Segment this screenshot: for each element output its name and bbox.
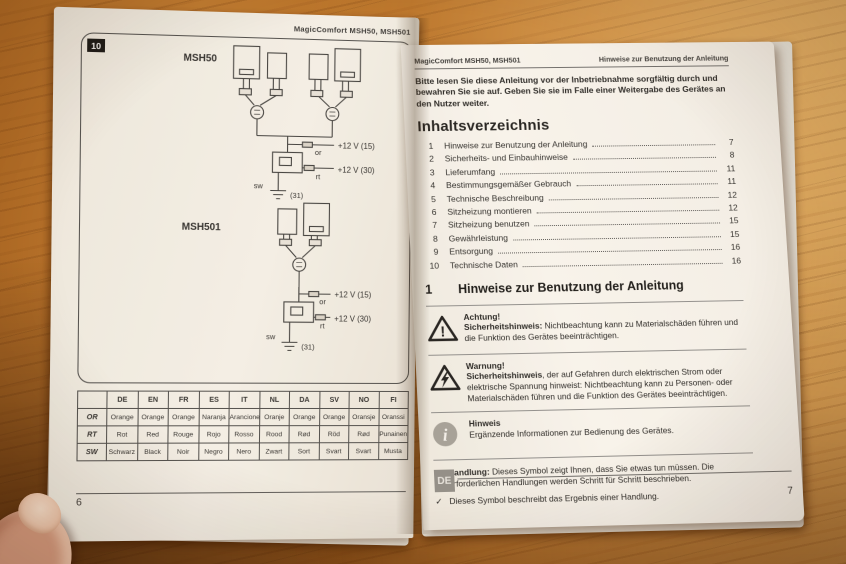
- relay: [272, 152, 302, 173]
- color-table-header-cell: IT: [229, 391, 259, 408]
- toc-item-label: Gewährleistung: [448, 232, 511, 243]
- toc-dot-leader: [592, 144, 715, 147]
- color-table-cell: Rød: [349, 426, 379, 443]
- wire-label-or: or: [319, 297, 326, 306]
- color-table-header-cell: SV: [319, 391, 349, 408]
- warning-triangle-lightning-icon: [429, 361, 468, 406]
- toc-item-page: 11: [718, 163, 735, 173]
- toc-item: 10 Technische Daten 16: [424, 255, 741, 270]
- toc-item-label: Technische Beschreibung: [446, 192, 546, 203]
- color-table-row: SWSchwarzBlackNoirNegroNeroZwartSortSvar…: [77, 443, 408, 461]
- header-chapter-name: Hinweise zur Benutzung der Anleitung: [599, 54, 729, 64]
- toc-item-number: 4: [420, 181, 435, 191]
- heating-pad: [267, 53, 286, 79]
- wire-label-rt: rt: [320, 321, 326, 330]
- table-of-contents: 1 Hinweise zur Benutzung der Anleitung 7…: [418, 137, 741, 270]
- heating-pad: [335, 49, 361, 82]
- msh501-label: MSH501: [182, 222, 222, 234]
- toc-item-number: 7: [422, 220, 437, 230]
- color-table-cell: Schwarz: [106, 443, 137, 460]
- toc-item-number: 1: [418, 141, 433, 151]
- toc-item-page: 11: [719, 176, 736, 186]
- toc-dot-leader: [498, 249, 722, 254]
- plug-connector: [251, 106, 264, 119]
- toc-item-page: 16: [723, 242, 740, 252]
- toc-item-label: Technische Daten: [450, 259, 521, 270]
- wire-label-rt: rt: [316, 172, 322, 181]
- toc-item-page: 16: [724, 255, 741, 265]
- wire-connector: [309, 240, 321, 246]
- color-table-cell: Oranje: [259, 408, 289, 425]
- wire-connector: [239, 89, 251, 95]
- wire-connector: [340, 91, 352, 97]
- notice-body: Sicherheitshinweis: Nichtbeachtung kann …: [464, 317, 746, 344]
- color-table-cell: Red: [137, 426, 168, 443]
- safety-notices: ! Achtung! Sicherheitshinweis: Nichtbeac…: [426, 300, 753, 461]
- color-table-cell: Oransje: [349, 408, 379, 425]
- color-table-cell: Sort: [289, 443, 319, 460]
- color-table-header-cell: DE: [107, 391, 138, 408]
- color-table-row: RTRotRedRougeRojoRossoRoodRødRödRødPunai…: [77, 426, 408, 444]
- thermostat: [240, 69, 254, 74]
- left-footer-rule: 6: [76, 491, 406, 509]
- color-table-header-cell: NO: [349, 391, 379, 408]
- manual-left-page: MagicComfort MSH50, MSH501 10 MSH50: [48, 7, 419, 542]
- color-table-cell: Rød: [289, 426, 319, 443]
- svg-text:!: !: [440, 324, 446, 340]
- toc-item-label: Sitzheizung montieren: [447, 206, 535, 217]
- toc-item-number: 10: [424, 260, 439, 270]
- toc-item-page: 7: [717, 137, 734, 147]
- toc-item-page: 15: [722, 229, 739, 239]
- color-table-cell: Svart: [319, 443, 349, 460]
- toc-dot-leader: [500, 170, 717, 174]
- heating-pad: [303, 203, 329, 236]
- relay: [284, 302, 314, 322]
- toc-item-page: 8: [718, 150, 735, 160]
- color-table-cell: Rouge: [168, 426, 199, 443]
- toc-item: 7 Sitzheizung benutzen 15: [422, 216, 739, 231]
- color-table-cell: Röd: [319, 426, 349, 443]
- color-table-cell: Orange: [319, 408, 349, 425]
- color-table-cell: Negro: [198, 443, 229, 460]
- plug-connector: [293, 258, 306, 271]
- section-heading: 1 Hinweise zur Benutzung der Anleitung: [425, 277, 743, 296]
- toc-item-label: Entsorgung: [449, 246, 496, 257]
- terminal-15-label: +12 V (15): [338, 141, 375, 151]
- color-table-cell: Orange: [137, 408, 168, 425]
- color-table-header-cell: [78, 391, 108, 408]
- toc-item-label: Sitzheizung benutzen: [448, 219, 533, 230]
- thermostat: [309, 226, 323, 231]
- ground-label: (31): [301, 342, 315, 351]
- info-circle-icon: i: [431, 419, 470, 453]
- color-table-cell: Black: [137, 443, 168, 460]
- toc-item-number: 5: [421, 194, 436, 204]
- color-table-cell: Orange: [107, 408, 138, 425]
- wiring-diagram: MSH50: [78, 33, 411, 383]
- color-table-cell: Orange: [168, 408, 199, 425]
- manual-right-page: MagicComfort MSH50, MSH501 Hinweise zur …: [401, 42, 805, 531]
- color-table-header-cell: NL: [259, 391, 289, 408]
- fuse: [304, 165, 314, 170]
- color-table-header-cell: FR: [168, 391, 199, 408]
- color-table-cell: Arancione: [229, 408, 259, 425]
- color-table-cell: Naranja: [199, 408, 230, 425]
- toc-item-number: 6: [421, 207, 436, 217]
- toc-item: 1 Hinweise zur Benutzung der Anleitung 7: [418, 137, 734, 151]
- color-table-cell: Orange: [289, 408, 319, 425]
- toc-item: 3 Lieferumfang 11: [419, 163, 735, 177]
- color-table-cell: SW: [77, 443, 107, 461]
- color-table-cell: Rot: [107, 426, 138, 443]
- color-table-cell: Oranssi: [378, 409, 408, 426]
- wire-color-table: DEENFRESITNLDASVNOFI OROrangeOrangeOrang…: [76, 390, 408, 461]
- color-table-cell: Nero: [229, 443, 259, 460]
- toc-dot-leader: [535, 223, 721, 227]
- wire-label-sw: sw: [254, 181, 264, 190]
- color-table-header-cell: ES: [199, 391, 230, 408]
- toc-item-label: Hinweise zur Benutzung der Anleitung: [444, 139, 591, 151]
- toc-item: 8 Gewährleistung 15: [423, 229, 740, 244]
- color-table-header-cell: DA: [289, 391, 319, 408]
- toc-item-number: 9: [423, 247, 438, 257]
- wire-label-sw: sw: [266, 332, 276, 341]
- relay-contact: [279, 157, 291, 165]
- toc-dot-leader: [537, 210, 720, 214]
- color-table-cell: OR: [77, 408, 107, 425]
- toc-item-number: 3: [419, 167, 434, 177]
- wire-label-or: or: [315, 148, 322, 157]
- section-title: Hinweise zur Benutzung der Anleitung: [458, 278, 684, 296]
- color-table-cell: Noir: [168, 443, 199, 460]
- color-table-cell: Rood: [259, 426, 289, 443]
- relay-contact: [291, 307, 303, 315]
- msh50-label: MSH50: [183, 52, 217, 64]
- color-table-header-cell: FI: [379, 391, 409, 408]
- toc-dot-leader: [576, 183, 718, 186]
- terminal-30-label: +12 V (30): [338, 165, 375, 175]
- toc-item: 6 Sitzheizung montieren 12: [421, 203, 738, 218]
- thumb-holding-page: [0, 492, 114, 564]
- fuse: [302, 142, 312, 147]
- terminal-15-label: +12 V (15): [334, 290, 371, 299]
- notice-attention: ! Achtung! Sicherheitshinweis: Nichtbeac…: [426, 300, 746, 355]
- color-table-header-cell: EN: [138, 391, 169, 408]
- color-table-cell: Rojo: [198, 426, 229, 443]
- heating-pad: [278, 209, 297, 235]
- heating-pad: [309, 54, 328, 80]
- wire-connector: [270, 89, 282, 95]
- toc-dot-leader: [523, 262, 723, 266]
- toc-item-label: Bestimmungsgemäßer Gebrauch: [446, 179, 575, 191]
- fuse: [309, 291, 319, 296]
- heating-pad: [233, 46, 259, 79]
- right-page-header: MagicComfort MSH50, MSH501 Hinweise zur …: [414, 54, 729, 70]
- toc-item: 9 Entsorgung 16: [423, 242, 740, 257]
- color-table-cell: Punainen: [378, 426, 408, 443]
- notice-body: Sicherheitshinweis, der auf Gefahren dur…: [466, 366, 749, 405]
- toc-item: 2 Sicherheits- und Einbauhinweise 8: [419, 150, 735, 164]
- color-table-cell: Svart: [348, 443, 378, 460]
- toc-item-label: Sicherheits- und Einbauhinweise: [445, 152, 572, 164]
- color-table-cell: Rosso: [229, 426, 259, 443]
- plug-connector: [326, 107, 339, 120]
- toc-item-page: 12: [720, 189, 737, 199]
- toc-item-number: 2: [419, 154, 434, 164]
- color-table-header-row: DEENFRESITNLDASVNOFI: [78, 391, 409, 409]
- language-badge: DE: [434, 469, 455, 492]
- toc-dot-leader: [549, 197, 719, 200]
- ground-label: (31): [290, 191, 304, 200]
- color-table-cell: RT: [77, 426, 107, 443]
- color-table-row: OROrangeOrangeOrangeNaranjaArancioneOran…: [77, 408, 408, 425]
- color-table-body: OROrangeOrangeOrangeNaranjaArancioneOran…: [77, 408, 408, 460]
- notice-warning: Warnung! Sicherheitshinweis, der auf Gef…: [428, 348, 750, 412]
- toc-dot-leader: [573, 157, 716, 160]
- toc-item: 4 Bestimmungsgemäßer Gebrauch 11: [420, 176, 736, 190]
- warning-triangle-exclamation-icon: !: [426, 312, 465, 348]
- terminal-30-label: +12 V (30): [334, 314, 371, 323]
- wire-connector: [280, 239, 292, 245]
- toc-item-label: Lieferumfang: [445, 166, 498, 177]
- thermostat: [341, 72, 355, 77]
- color-table-cell: Musta: [378, 443, 408, 460]
- header-product-name: MagicComfort MSH50, MSH501: [414, 56, 521, 66]
- wire-connector: [311, 90, 323, 96]
- section-number: 1: [425, 282, 459, 297]
- toc-title: Inhaltsverzeichnis: [417, 115, 733, 135]
- intro-paragraph: Bitte lesen Sie diese Anleitung vor der …: [415, 73, 731, 110]
- toc-item: 5 Technische Beschreibung 12: [421, 189, 737, 203]
- toc-item-number: 8: [423, 234, 438, 244]
- notice-hint: i Hinweis Ergänzende Informationen zur B…: [431, 406, 753, 460]
- toc-item-page: 12: [721, 203, 738, 213]
- fuse: [315, 315, 325, 320]
- wiring-figure-frame: 10 MSH50: [77, 32, 412, 384]
- color-table-cell: Zwart: [259, 443, 289, 460]
- toc-item-page: 15: [722, 216, 739, 226]
- toc-dot-leader: [513, 236, 721, 240]
